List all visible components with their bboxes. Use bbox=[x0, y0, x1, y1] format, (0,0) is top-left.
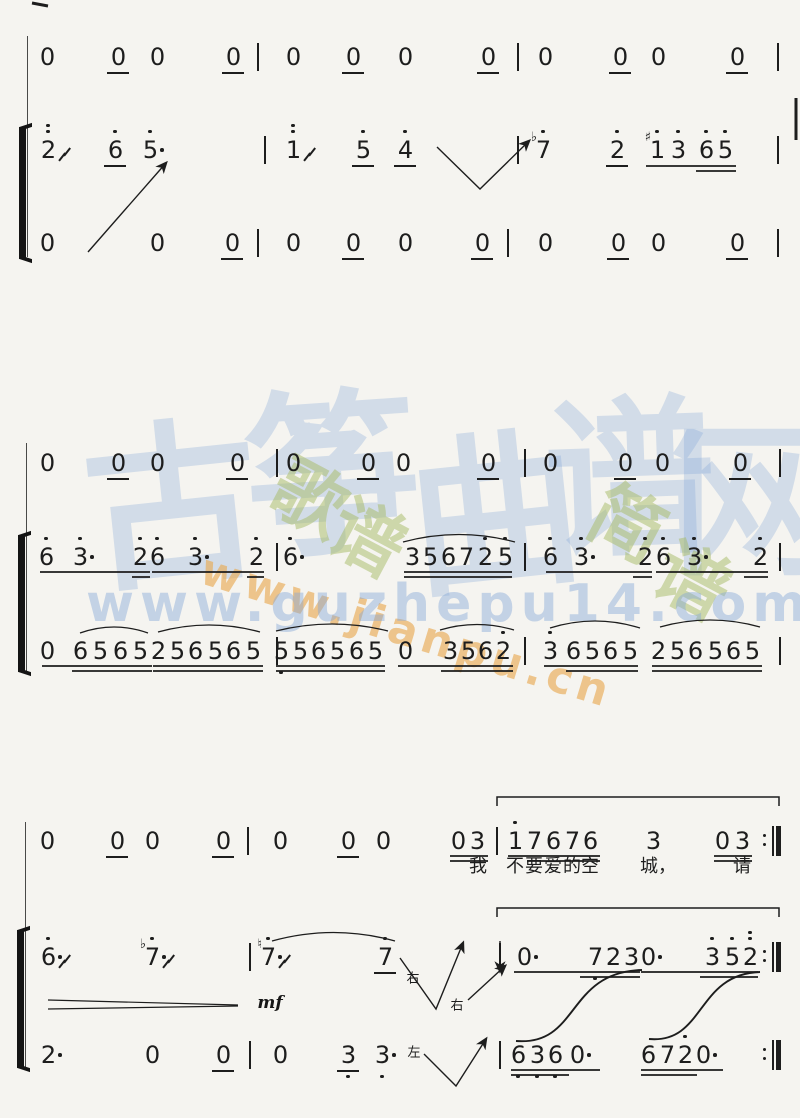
lyric-syllable: 爱 bbox=[544, 858, 562, 876]
dynamic-marking: mf bbox=[257, 993, 282, 1013]
lyric-syllable: 我 bbox=[469, 858, 487, 876]
text-layer: 我不要爱的空城，请右右左mf bbox=[0, 0, 800, 1118]
lyric-syllable: 的 bbox=[563, 858, 581, 876]
lyric-syllable: 不 bbox=[506, 858, 524, 876]
hand-technique-label: 右 bbox=[406, 973, 419, 986]
lyric-syllable: 空 bbox=[581, 858, 599, 876]
sheet-page: 古筝曲谱网歌谱简谱www.jianpu.cnwww.guzhepu14.com … bbox=[0, 0, 800, 1118]
lyric-syllable: 请 bbox=[733, 858, 751, 876]
lyric-syllable: 要 bbox=[525, 858, 543, 876]
hand-technique-label: 右 bbox=[450, 1000, 463, 1013]
lyric-syllable: 城， bbox=[640, 858, 676, 876]
hand-technique-label: 左 bbox=[407, 1047, 420, 1060]
